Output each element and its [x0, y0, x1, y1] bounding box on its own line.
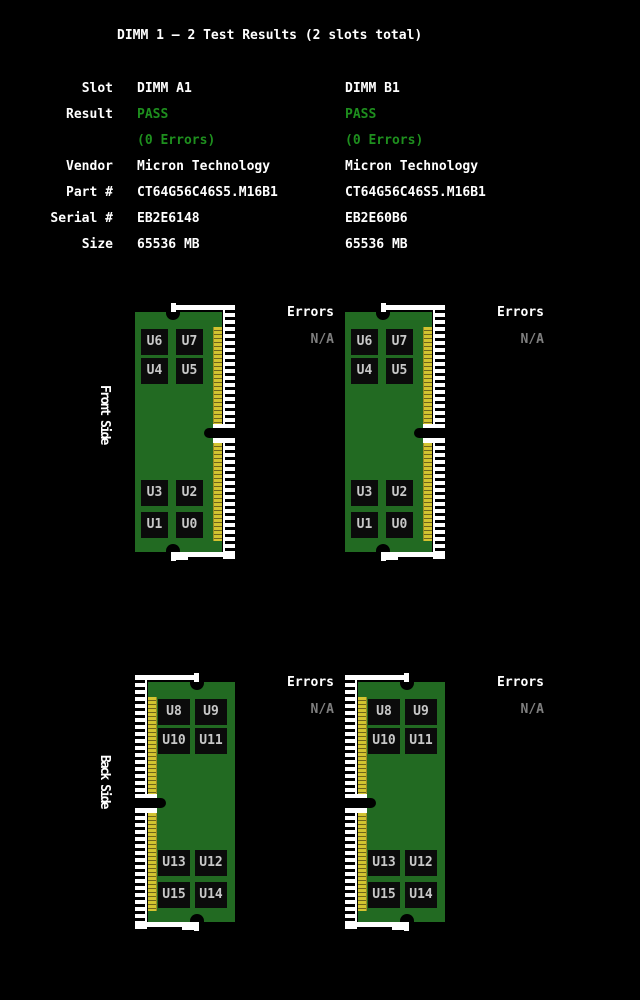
- retention-clip-bottom-bar: [182, 925, 199, 930]
- retention-clip-top-bar: [171, 305, 188, 310]
- memory-chip: U6: [351, 329, 378, 355]
- memory-chip: U2: [176, 480, 203, 506]
- memory-chip: U10: [158, 728, 190, 754]
- row-label: Result: [0, 108, 113, 122]
- gold-finger-strip-lower: [148, 813, 157, 911]
- pcb-notch-bottom: [190, 914, 204, 922]
- info-row: Size65536 MB65536 MB: [0, 238, 640, 252]
- memory-chip: U4: [351, 358, 378, 384]
- info-row: Part #CT64G56C46S5.M16B1CT64G56C46S5.M16…: [0, 186, 640, 200]
- memory-chip: U10: [368, 728, 400, 754]
- side-label: Front Side: [95, 385, 111, 500]
- memory-chip: U5: [386, 358, 413, 384]
- pcb-notch-bottom: [400, 914, 414, 922]
- pcb-notch-bottom: [376, 544, 390, 552]
- retention-clip-top-bar: [381, 305, 398, 310]
- memory-chip: U7: [386, 329, 413, 355]
- retention-clip-bottom-bar: [392, 925, 409, 930]
- value-dimm-a1: (0 Errors): [137, 134, 215, 148]
- value-dimm-b1: PASS: [345, 108, 376, 122]
- key-notch: [345, 798, 376, 808]
- value-dimm-a1: DIMM A1: [137, 82, 192, 96]
- memory-chip: U5: [176, 358, 203, 384]
- row-label: Serial #: [0, 212, 113, 226]
- gold-finger-strip-lower: [358, 813, 367, 911]
- errors-value: N/A: [424, 333, 544, 347]
- memory-chip: U11: [195, 728, 227, 754]
- gold-finger-strip-lower: [423, 443, 432, 541]
- memory-chip: U15: [368, 882, 400, 908]
- retention-clip-bottom-bar: [171, 555, 188, 560]
- retention-clip-top-bar: [182, 675, 199, 680]
- gold-finger-strip-upper: [148, 697, 157, 794]
- memory-chip: U6: [141, 329, 168, 355]
- memory-chip: U8: [368, 699, 400, 725]
- value-dimm-a1: PASS: [137, 108, 168, 122]
- row-label: Vendor: [0, 160, 113, 174]
- value-dimm-b1: (0 Errors): [345, 134, 423, 148]
- key-notch: [135, 798, 166, 808]
- value-dimm-b1: CT64G56C46S5.M16B1: [345, 186, 486, 200]
- value-dimm-b1: EB2E60B6: [345, 212, 408, 226]
- page-title: DIMM 1 – 2 Test Results (2 slots total): [117, 29, 422, 43]
- dimm-test-results-screen: { "title": "DIMM 1 – 2 Test Results (2 s…: [0, 0, 640, 1000]
- info-row: VendorMicron TechnologyMicron Technology: [0, 160, 640, 174]
- pcb-notch-top: [376, 312, 390, 320]
- key-notch: [204, 428, 235, 438]
- memory-chip: U3: [351, 480, 378, 506]
- errors-label: Errors: [214, 676, 334, 690]
- value-dimm-a1: 65536 MB: [137, 238, 200, 252]
- errors-value: N/A: [214, 703, 334, 717]
- memory-chip: U0: [386, 512, 413, 538]
- info-row: Serial #EB2E6148EB2E60B6: [0, 212, 640, 226]
- value-dimm-b1: 65536 MB: [345, 238, 408, 252]
- pcb-notch-bottom: [166, 544, 180, 552]
- value-dimm-a1: CT64G56C46S5.M16B1: [137, 186, 278, 200]
- info-row: (0 Errors)(0 Errors): [0, 134, 640, 148]
- memory-chip: U1: [141, 512, 168, 538]
- memory-chip: U0: [176, 512, 203, 538]
- gold-finger-strip-upper: [358, 697, 367, 794]
- memory-chip: U12: [195, 850, 227, 876]
- memory-chip: U12: [405, 850, 437, 876]
- memory-chip: U8: [158, 699, 190, 725]
- memory-chip: U2: [386, 480, 413, 506]
- value-dimm-b1: Micron Technology: [345, 160, 478, 174]
- row-label: Part #: [0, 186, 113, 200]
- pcb-notch-top: [190, 682, 204, 690]
- memory-chip: U15: [158, 882, 190, 908]
- info-row: SlotDIMM A1DIMM B1: [0, 82, 640, 96]
- retention-clip-bottom-bar: [381, 555, 398, 560]
- info-row: ResultPASSPASS: [0, 108, 640, 122]
- value-dimm-a1: EB2E6148: [137, 212, 200, 226]
- key-notch: [414, 428, 445, 438]
- pcb-notch-top: [400, 682, 414, 690]
- memory-chip: U11: [405, 728, 437, 754]
- errors-label: Errors: [424, 676, 544, 690]
- memory-chip: U14: [195, 882, 227, 908]
- errors-label: Errors: [424, 306, 544, 320]
- side-label: Back Side: [95, 755, 111, 870]
- value-dimm-b1: DIMM B1: [345, 82, 400, 96]
- row-label: Slot: [0, 82, 113, 96]
- value-dimm-a1: Micron Technology: [137, 160, 270, 174]
- pcb-notch-top: [166, 312, 180, 320]
- memory-chip: U7: [176, 329, 203, 355]
- memory-chip: U13: [158, 850, 190, 876]
- memory-chip: U3: [141, 480, 168, 506]
- memory-chip: U1: [351, 512, 378, 538]
- memory-chip: U4: [141, 358, 168, 384]
- errors-label: Errors: [214, 306, 334, 320]
- memory-chip: U14: [405, 882, 437, 908]
- row-label: Size: [0, 238, 113, 252]
- retention-clip-top-bar: [392, 675, 409, 680]
- errors-value: N/A: [214, 333, 334, 347]
- memory-chip: U13: [368, 850, 400, 876]
- errors-value: N/A: [424, 703, 544, 717]
- gold-finger-strip-lower: [213, 443, 222, 541]
